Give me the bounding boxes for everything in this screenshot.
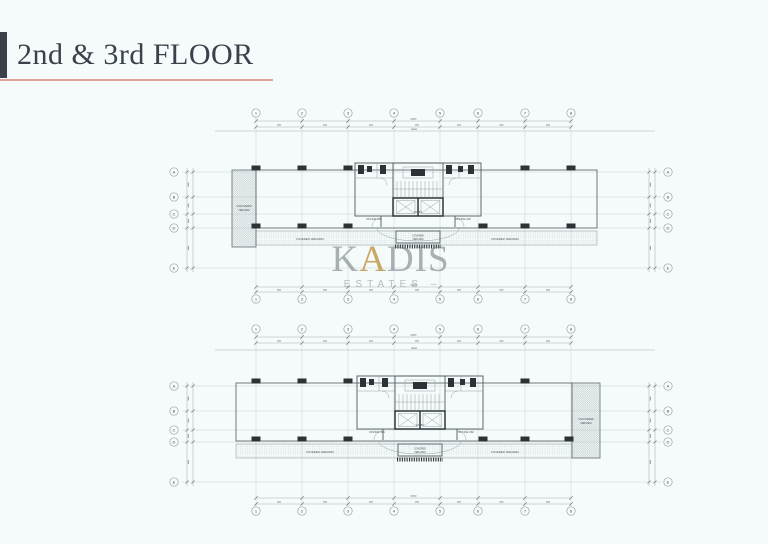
dimension-value bbox=[650, 419, 651, 423]
dimension-value bbox=[415, 340, 419, 341]
grid-row-label: C bbox=[667, 428, 670, 433]
grid-row-label: B bbox=[173, 195, 176, 200]
page: 2nd & 3rd FLOOR bbox=[0, 0, 768, 544]
grid-row-label: B bbox=[667, 409, 670, 414]
dimension-value bbox=[650, 460, 651, 464]
dimension-value bbox=[546, 289, 550, 290]
dimension-value bbox=[188, 397, 189, 401]
grid-row-label: D bbox=[667, 226, 670, 231]
room-label: COVERED VERANDA bbox=[296, 237, 324, 241]
dimension-value bbox=[323, 501, 327, 502]
dimension-value bbox=[457, 124, 461, 125]
room-label: OFFICE 202 bbox=[455, 217, 471, 221]
grid-row-label: D bbox=[173, 226, 176, 231]
grid-row-label: A bbox=[667, 170, 670, 175]
dimension-value bbox=[323, 289, 327, 290]
grid-row-label: B bbox=[173, 409, 176, 414]
grid-row-label: A bbox=[667, 384, 670, 389]
dimension-value bbox=[369, 340, 373, 341]
dimension-value bbox=[411, 118, 417, 119]
dimension-value bbox=[500, 124, 504, 125]
dimension-value bbox=[369, 289, 373, 290]
dimension-value bbox=[188, 460, 189, 464]
dimension-value bbox=[411, 334, 417, 335]
grid-row-label: A bbox=[173, 384, 176, 389]
dimension-value bbox=[188, 183, 189, 187]
dimension-value bbox=[369, 124, 373, 125]
dimension-value bbox=[500, 340, 504, 341]
dimension-value bbox=[457, 501, 461, 502]
dimension-value bbox=[500, 501, 504, 502]
dimension-value bbox=[650, 183, 651, 187]
dimension-value bbox=[411, 129, 417, 130]
grid-row-label: E bbox=[667, 266, 670, 271]
grid-row-label: E bbox=[667, 480, 670, 485]
room-label: UNCOVERED bbox=[578, 418, 594, 421]
dimension-value bbox=[188, 419, 189, 423]
third-floor-plan: UNCOVERED VERANDA COVERED VERANDA COVERE… bbox=[236, 376, 600, 460]
dimension-value bbox=[546, 340, 550, 341]
grid-row-label: C bbox=[173, 428, 176, 433]
dimension-value bbox=[546, 124, 550, 125]
dimension-value bbox=[500, 289, 504, 290]
dimension-value bbox=[323, 340, 327, 341]
room-label: VERANDA bbox=[414, 451, 426, 454]
building-outline bbox=[256, 170, 597, 228]
dimension-value bbox=[411, 495, 417, 496]
floor-plans-drawing: AABBCCDDEE1122334455667788 AABBCCDDEE112… bbox=[0, 0, 768, 544]
grid-row-label: B bbox=[667, 195, 670, 200]
dimension-value bbox=[188, 434, 189, 438]
room-label: VERANDA bbox=[412, 238, 424, 241]
grid-row-label: E bbox=[173, 266, 176, 271]
dimension-value bbox=[188, 219, 189, 223]
dimension-value bbox=[188, 246, 189, 250]
room-label: OFFICE 301 bbox=[369, 430, 385, 434]
dimension-value bbox=[457, 289, 461, 290]
dimension-value bbox=[411, 284, 417, 285]
dimension-value bbox=[415, 124, 419, 125]
dimension-value bbox=[277, 124, 281, 125]
dimension-value bbox=[415, 289, 419, 290]
grid-row-label: A bbox=[173, 170, 176, 175]
dimension-value bbox=[650, 219, 651, 223]
room-label: VERANDA bbox=[238, 209, 250, 212]
room-label: LOBBY bbox=[414, 211, 422, 214]
dimension-value bbox=[650, 434, 651, 438]
dimension-value bbox=[415, 501, 419, 502]
room-label: LOBBY bbox=[416, 424, 424, 427]
dimension-value bbox=[277, 289, 281, 290]
dimension-value bbox=[188, 204, 189, 208]
grid-row-label: C bbox=[667, 212, 670, 217]
dimension-value bbox=[277, 501, 281, 502]
grid-row-label: E bbox=[173, 480, 176, 485]
dimension-value bbox=[650, 204, 651, 208]
room-label: OFFICE 201 bbox=[366, 217, 382, 221]
room-label: VERANDA bbox=[580, 422, 592, 425]
grid-row-label: C bbox=[173, 212, 176, 217]
dimension-value bbox=[323, 124, 327, 125]
room-label: UNCOVERED bbox=[236, 205, 252, 208]
dimension-value bbox=[546, 501, 550, 502]
grid-row-label: D bbox=[667, 440, 670, 445]
room-label: COVERED VERANDA bbox=[491, 450, 519, 454]
room-label: COVERED VERANDA bbox=[491, 237, 519, 241]
dimension-value bbox=[411, 348, 417, 349]
building-outline bbox=[236, 383, 572, 441]
dimension-value bbox=[277, 340, 281, 341]
dimension-value bbox=[650, 246, 651, 250]
dimension-value bbox=[457, 340, 461, 341]
second-floor-plan: UNCOVERED VERANDA COVERED VERANDA COVERE… bbox=[232, 163, 597, 247]
dimension-value bbox=[650, 397, 651, 401]
grid-row-label: D bbox=[173, 440, 176, 445]
dimension-value bbox=[369, 501, 373, 502]
room-label: OFFICE 302 bbox=[458, 430, 474, 434]
room-label: COVERED VERANDA bbox=[306, 450, 334, 454]
